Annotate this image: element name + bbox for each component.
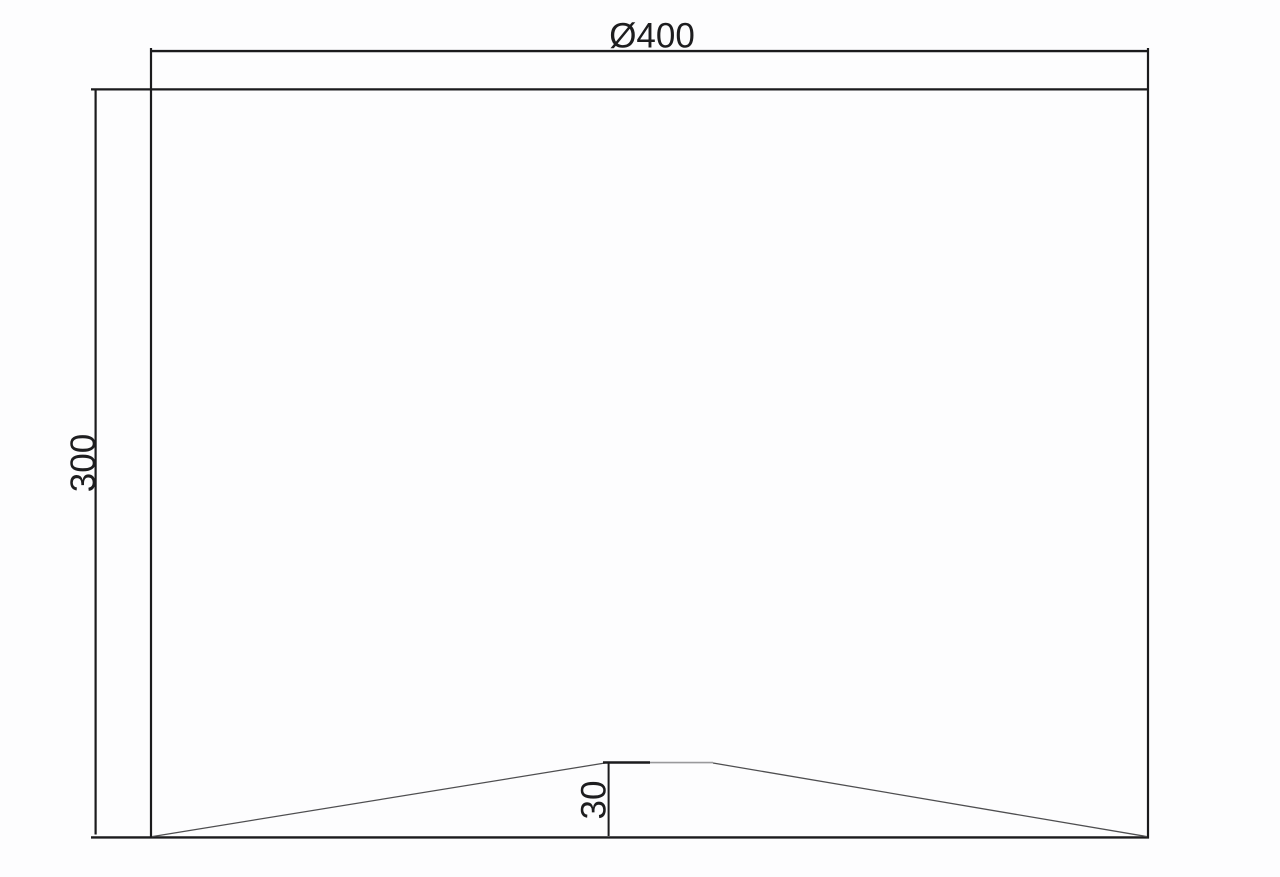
svg-text:Ø400: Ø400: [609, 17, 695, 56]
svg-text:30: 30: [575, 781, 614, 820]
svg-text:300: 300: [64, 434, 103, 492]
